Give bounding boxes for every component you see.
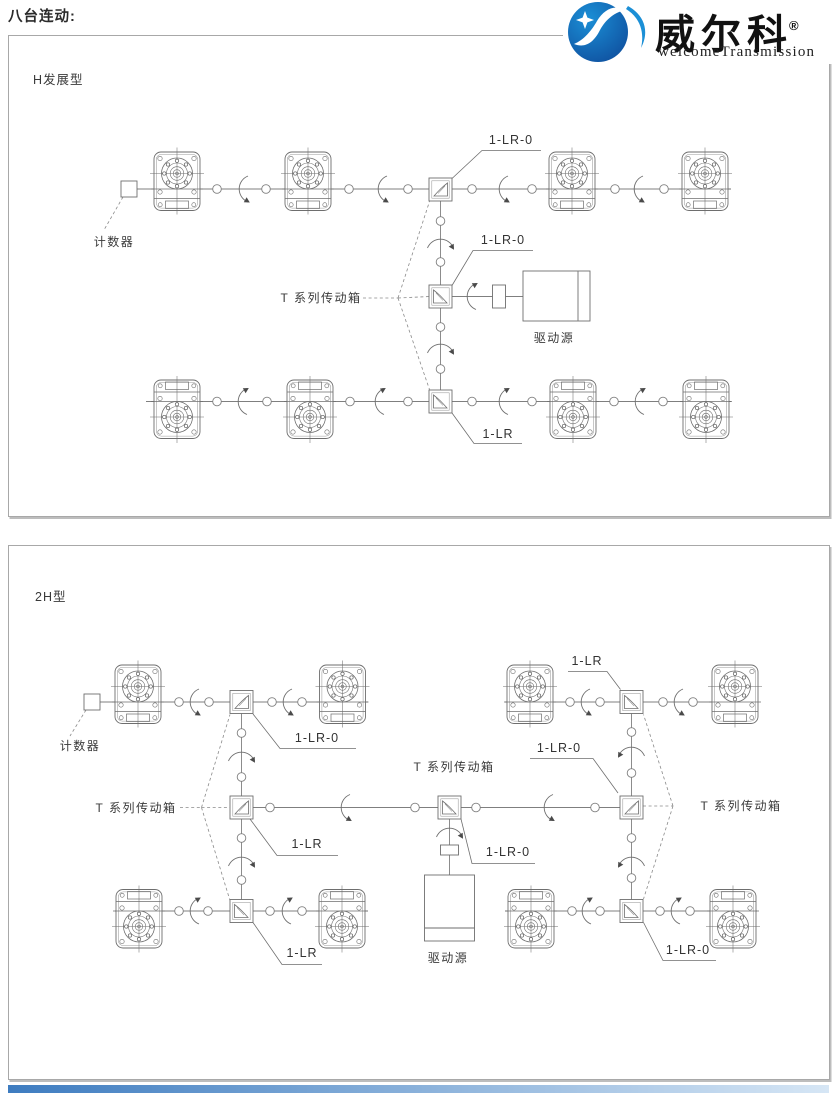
t-series-label: T 系列传动箱 — [414, 758, 495, 775]
drive-source-label: 驱动源 — [428, 949, 469, 966]
gearbox-code-label: 1-LR-0 — [537, 741, 581, 755]
footer-accent-bar — [8, 1085, 829, 1093]
drive-source-label: 驱动源 — [534, 329, 575, 346]
counter-label: 计数器 — [60, 737, 101, 754]
gearbox-code-label: 1-LR-0 — [486, 845, 530, 859]
panel1-title: H发展型 — [33, 69, 84, 88]
gearbox-code-label: 1-LR-0 — [489, 133, 533, 147]
gearbox-code-label: 1-LR — [286, 946, 317, 960]
t-series-label: T 系列传动箱 — [96, 799, 177, 816]
gearbox-code-label: 1-LR-0 — [666, 943, 710, 957]
gearbox-code-label: 1-LR — [482, 427, 513, 441]
gearbox-code-label: 1-LR — [291, 837, 322, 851]
panel-h-type — [8, 35, 830, 517]
registered-mark: ® — [789, 18, 799, 33]
gearbox-code-label: 1-LR-0 — [481, 233, 525, 247]
brand-subtitle: welcomeTransmission — [658, 44, 815, 61]
brand-logo-icon — [566, 0, 656, 64]
counter-label: 计数器 — [94, 233, 135, 250]
panel2-title: 2H型 — [35, 586, 66, 605]
t-series-label: T 系列传动箱 — [281, 289, 362, 306]
gearbox-code-label: 1-LR — [571, 654, 602, 668]
page-heading: 八台连动: — [8, 5, 76, 26]
gearbox-code-label: 1-LR-0 — [295, 731, 339, 745]
brand-logo: 威尔科® welcomeTransmission — [563, 0, 840, 64]
t-series-label: T 系列传动箱 — [701, 797, 782, 814]
